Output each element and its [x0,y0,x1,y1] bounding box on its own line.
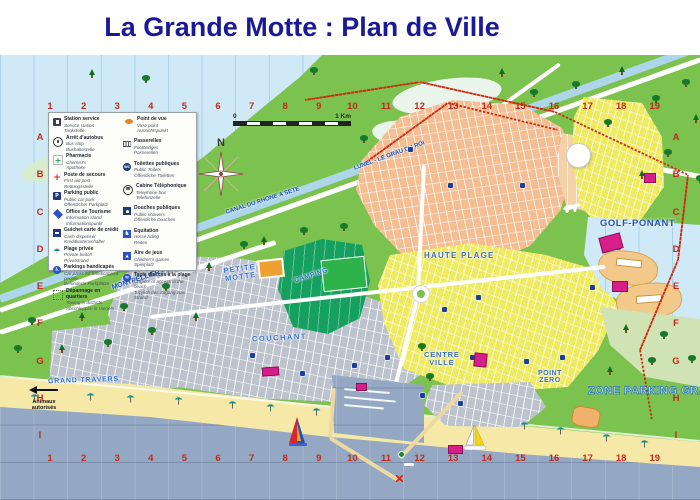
highlighted-building [598,232,623,253]
highlighted-building [644,173,656,183]
header: La Grande Motte : Plan de Ville [0,0,700,55]
highlighted-building [448,445,463,454]
city-map: PETITE MOTTE HAUTE PLAGE COUCHANT CAMPIN… [0,55,700,500]
highlighted-building [612,281,628,292]
map-page: La Grande Motte : Plan de Ville [0,0,700,500]
page-title: La Grande Motte : Plan de Ville [0,0,700,43]
building-layer [0,55,700,500]
highlighted-building [262,366,280,376]
highlighted-building [473,352,487,367]
highlighted-building [356,383,367,391]
